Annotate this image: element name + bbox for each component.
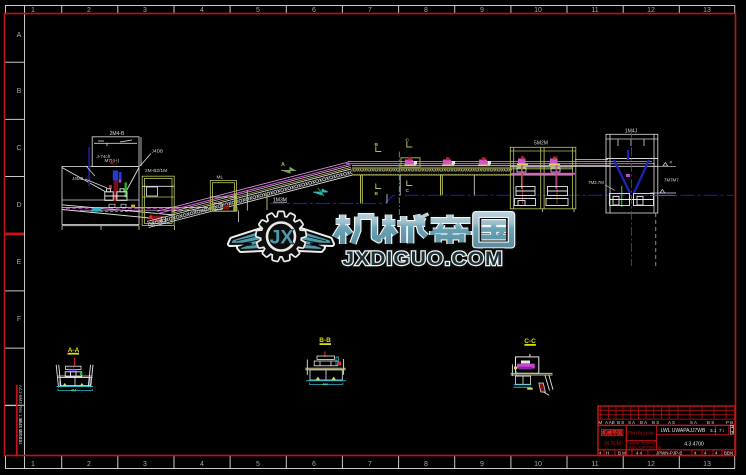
svg-text:P B: P B [726,420,733,425]
svg-text:ML: ML [217,175,224,181]
svg-text:4M: 4M [322,382,327,386]
svg-text:LWL UWAPAJJ7WB: LWL UWAPAJJ7WB [661,428,706,434]
svg-text:J4DB: J4DB [152,149,164,155]
svg-text:H: H [606,450,609,455]
svg-text:B: B [375,191,379,197]
svg-text:7 i: 7 i [719,428,724,433]
svg-text:BBN: BBN [724,450,733,455]
svg-text:6: 6 [312,461,316,468]
svg-text:A: A [281,162,285,168]
svg-text:1M3M: 1M3M [273,198,287,204]
svg-text:JPWN-PJP-B: JPWN-PJP-B [656,450,682,455]
svg-text:2M4-B: 2M4-B [110,131,125,137]
svg-text:7M7M7: 7M7M7 [664,178,679,183]
svg-text:4 4: 4 4 [636,450,643,455]
svg-text:1: 1 [31,461,35,468]
svg-text:B S: B S [617,420,624,425]
svg-text:JXDIGUO.COM: JXDIGUO.COM [342,249,503,270]
svg-text:4: 4 [200,461,204,468]
svg-text:机械帝国: 机械帝国 [601,430,622,437]
svg-text:B-B: B-B [319,337,331,344]
svg-text:A: A [17,32,22,39]
svg-text:C: C [16,145,21,152]
svg-text:S A: S A [690,420,697,425]
svg-text:11: 11 [591,461,598,468]
svg-text:D: D [16,202,21,209]
svg-text:5M2M: 5M2M [534,141,548,147]
svg-text:J4M2: J4M2 [72,176,84,181]
svg-text:NMLAJPYWMLB: NMLAJPYWMLB [629,445,661,450]
svg-text:C: C [406,188,410,194]
svg-text:M: M [599,420,603,425]
svg-text:M(.): M(.) [110,161,118,166]
svg-text:A AB: A AB [605,420,615,425]
svg-text:C: C [406,138,410,144]
svg-text:8: 8 [424,461,428,468]
svg-text:F: F [17,316,21,323]
svg-text:7M3.7M: 7M3.7M [588,180,604,185]
svg-text:4.3.4700: 4.3.4700 [684,441,704,447]
svg-text:E: E [17,259,22,266]
svg-text:4M: 4M [71,389,76,393]
svg-text:3.1: 3.1 [710,428,717,433]
svg-text:A S: A S [668,420,675,425]
svg-text:B: B [375,142,379,148]
svg-text:B A: B A [640,420,647,425]
svg-text:B S: B S [707,420,714,425]
svg-text:C-C: C-C [524,338,536,345]
svg-text:2: 2 [87,461,91,468]
svg-text:9: 9 [480,461,484,468]
svg-text:3: 3 [143,461,147,468]
svg-text:JX: JX [270,227,294,249]
svg-text:BM2 M-7 24: BM2 M-7 24 [18,419,23,442]
svg-text:PMYPLHAM: PMYPLHAM [628,430,654,435]
svg-text:13: 13 [703,461,711,468]
svg-text:S A: S A [628,420,635,425]
svg-text:12: 12 [647,461,655,468]
svg-text:B S: B S [652,420,659,425]
svg-text:B: B [17,88,22,95]
svg-text:5: 5 [256,461,260,468]
svg-text:2M-B2/1M: 2M-B2/1M [145,168,167,174]
svg-text:10: 10 [534,461,542,468]
svg-text:7: 7 [368,461,372,468]
svg-text:B M: B M [618,450,626,455]
